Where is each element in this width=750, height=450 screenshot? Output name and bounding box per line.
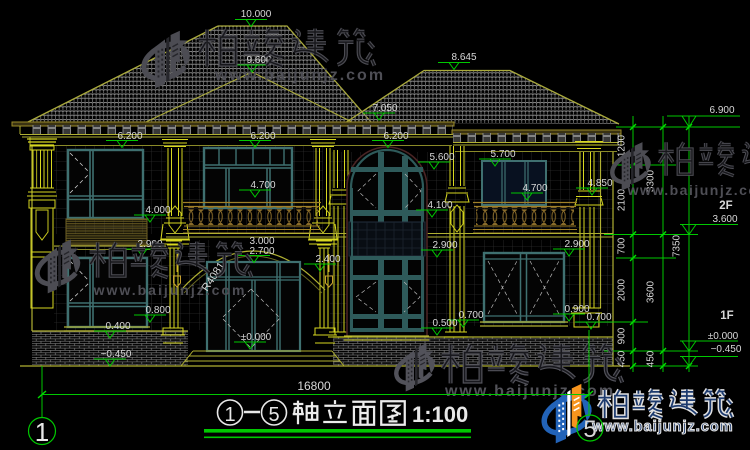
svg-text:1: 1 — [224, 404, 235, 426]
svg-text:−0.450: −0.450 — [711, 344, 742, 355]
svg-text:2.400: 2.400 — [315, 254, 340, 265]
svg-text:±0.000: ±0.000 — [708, 331, 739, 342]
svg-text:450: 450 — [646, 350, 657, 367]
svg-text:10.000: 10.000 — [241, 9, 272, 20]
svg-text:5.600: 5.600 — [429, 152, 454, 163]
svg-text:7350: 7350 — [672, 234, 683, 257]
svg-text:0.700: 0.700 — [586, 312, 611, 323]
svg-text:0.400: 0.400 — [105, 321, 130, 332]
svg-text:www.baijunjz.com: www.baijunjz.com — [591, 419, 733, 435]
svg-text:0.800: 0.800 — [145, 305, 170, 316]
svg-text:2100: 2100 — [617, 188, 628, 211]
svg-text:2000: 2000 — [617, 278, 628, 301]
svg-text:5: 5 — [268, 404, 279, 426]
svg-text:700: 700 — [617, 237, 628, 254]
svg-text:±0.000: ±0.000 — [241, 332, 272, 343]
svg-text:www.baijunjz.com: www.baijunjz.com — [627, 182, 750, 198]
svg-text:0.500: 0.500 — [432, 318, 457, 329]
svg-text:6.900: 6.900 — [709, 105, 734, 116]
svg-text:8.645: 8.645 — [451, 52, 476, 63]
svg-text:7.050: 7.050 — [372, 103, 397, 114]
svg-text:0.700: 0.700 — [458, 310, 483, 321]
svg-text:2F: 2F — [719, 200, 732, 212]
svg-text:3.600: 3.600 — [712, 214, 737, 225]
svg-text:4.000: 4.000 — [145, 205, 170, 216]
svg-text:4.700: 4.700 — [250, 180, 275, 191]
svg-text:−0.450: −0.450 — [101, 349, 132, 360]
svg-text:www.baijunjz.com: www.baijunjz.com — [93, 282, 247, 298]
svg-text:www.baijunjz.com: www.baijunjz.com — [214, 67, 385, 84]
svg-text:1: 1 — [35, 417, 49, 447]
svg-text:2.900: 2.900 — [432, 240, 457, 251]
svg-text:4.100: 4.100 — [427, 200, 452, 211]
svg-text:4.850: 4.850 — [587, 178, 612, 189]
svg-text:900: 900 — [617, 327, 628, 344]
svg-text:1F: 1F — [720, 310, 733, 322]
svg-text:5: 5 — [583, 416, 596, 443]
svg-text:3600: 3600 — [646, 280, 657, 303]
svg-text:16800: 16800 — [297, 379, 331, 393]
svg-text:2.900: 2.900 — [564, 239, 589, 250]
svg-text:4.700: 4.700 — [522, 183, 547, 194]
svg-text:1:100: 1:100 — [412, 402, 468, 427]
svg-text:5.700: 5.700 — [490, 149, 515, 160]
